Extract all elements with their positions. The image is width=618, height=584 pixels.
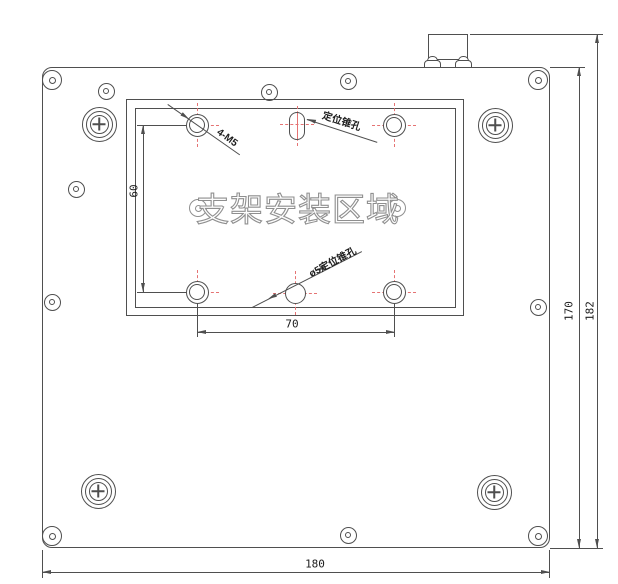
corner-hole-bottom-right xyxy=(528,526,548,546)
dim-arrow xyxy=(141,125,145,134)
ext-line xyxy=(550,548,603,549)
phillips-screw xyxy=(477,475,512,510)
dim-label-170: 170 xyxy=(563,301,576,321)
ext-line xyxy=(470,34,603,35)
dim-label-182: 182 xyxy=(584,301,597,321)
slot-centerline xyxy=(297,113,298,139)
dim-label-70: 70 xyxy=(285,318,298,331)
connector-foot-right-base xyxy=(455,60,472,68)
dim-arrow xyxy=(197,330,206,334)
connector-foot-left-base xyxy=(424,60,441,68)
mounting-hole xyxy=(340,527,357,544)
dim-arrow xyxy=(595,34,599,43)
dim-line-182 xyxy=(597,34,598,548)
m5-hole xyxy=(186,281,209,304)
dim-arrow xyxy=(42,570,51,574)
phillips-screw xyxy=(81,474,116,509)
dim-arrow xyxy=(386,330,395,334)
mounting-hole xyxy=(44,294,61,311)
dim-label-180: 180 xyxy=(305,558,325,571)
phillips-screw xyxy=(82,107,117,142)
mounting-hole xyxy=(98,83,115,100)
connector-foot-right-dome xyxy=(458,56,469,61)
dim-line-170 xyxy=(579,67,580,548)
mounting-hole xyxy=(530,299,547,316)
mounting-hole xyxy=(261,84,278,101)
dim-line-60 xyxy=(143,125,144,292)
m5-hole xyxy=(383,281,406,304)
phillips-screw xyxy=(478,108,513,143)
corner-hole-bottom-left xyxy=(42,526,62,546)
connector-foot-left-dome xyxy=(427,56,438,61)
dim-arrow xyxy=(541,570,550,574)
mounting-hole xyxy=(340,73,357,90)
dim-arrow xyxy=(595,539,599,548)
bracket-area-label: 支架安装区域 xyxy=(196,183,400,231)
m5-hole xyxy=(383,114,406,137)
corner-hole-top-left xyxy=(42,70,62,90)
dim-arrow xyxy=(141,283,145,292)
drawing-canvas: 支架安装区域 60 70 180 170 182 4-M5 定位锥孔 ø5定位锥… xyxy=(0,0,618,584)
dim-label-60: 60 xyxy=(128,184,141,197)
dim-line-180 xyxy=(42,572,550,573)
dim-line-70 xyxy=(197,332,395,333)
dim-arrow xyxy=(577,539,581,548)
ext-line xyxy=(137,292,186,293)
dim-arrow xyxy=(577,67,581,76)
mounting-hole xyxy=(68,181,85,198)
corner-hole-top-right xyxy=(528,70,548,90)
